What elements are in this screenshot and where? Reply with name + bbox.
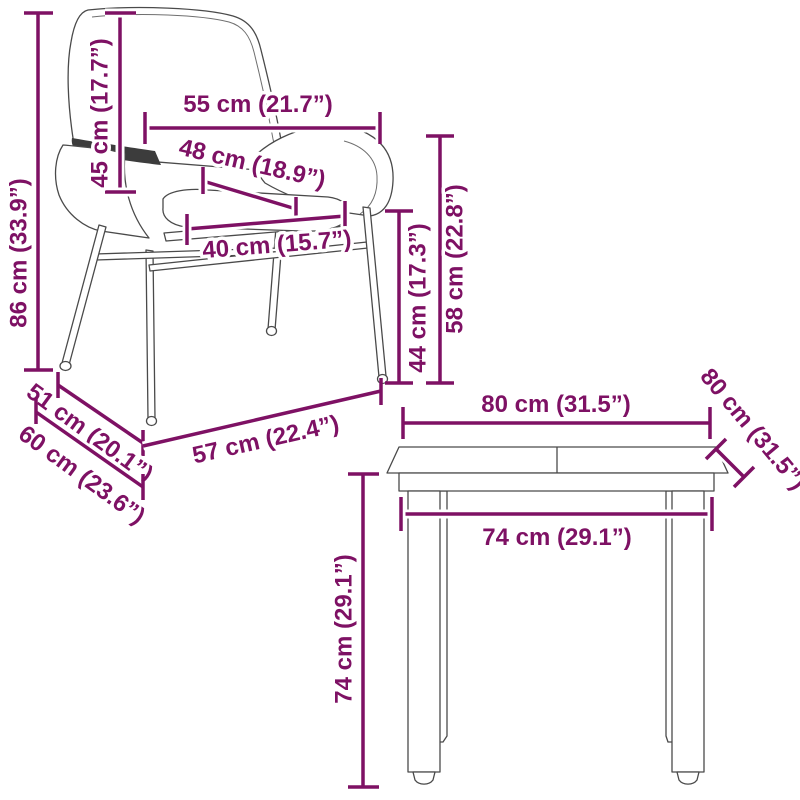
chair-top-width-label: 55 cm (21.7”) xyxy=(183,91,332,118)
chair-seat-height-label: 44 cm (17.3”) xyxy=(404,223,431,372)
table-top-width-label: 80 cm (31.5”) xyxy=(481,391,630,418)
chair-backrest-height-label: 45 cm (17.7”) xyxy=(86,38,113,187)
chair-leg-front-left xyxy=(62,225,106,365)
chair-total-height-dimension: 86 cm (33.9”) xyxy=(5,13,53,370)
chair-foot xyxy=(267,327,277,336)
table-dimensions: 80 cm (31.5”) 80 cm (31.5”) 74 cm (29.1”… xyxy=(330,363,800,787)
table-height-label: 74 cm (29.1”) xyxy=(330,554,357,703)
chair-armrest-height-label: 58 cm (22.8”) xyxy=(441,184,468,333)
chair-seat-height-dimension: 44 cm (17.3”) xyxy=(385,211,431,383)
chair-base-width-dimension: 57 cm (22.4”) xyxy=(143,378,381,469)
dimension-diagram: 86 cm (33.9”) 45 cm (17.7”) 55 cm (21.7”… xyxy=(0,0,800,800)
table-foot-right xyxy=(677,772,699,784)
chair-leg-front-right xyxy=(363,207,386,377)
table-top-width-dimension: 80 cm (31.5”) xyxy=(403,391,710,439)
chair-total-height-label: 86 cm (33.9”) xyxy=(5,178,32,327)
diagram-svg: 86 cm (33.9”) 45 cm (17.7”) 55 cm (21.7”… xyxy=(0,0,800,800)
table-leg-span-label: 74 cm (29.1”) xyxy=(482,524,631,551)
table-foot-left xyxy=(413,772,435,784)
table-apron xyxy=(399,473,714,491)
chair-foot xyxy=(60,362,71,371)
table-illustration xyxy=(387,447,728,784)
chair-foot xyxy=(147,417,157,426)
chair-armrest-height-dimension: 58 cm (22.8”) xyxy=(426,136,468,383)
table-leg-front-left xyxy=(408,491,440,772)
table-leg-front-right xyxy=(672,491,704,772)
table-height-dimension: 74 cm (29.1”) xyxy=(330,474,379,787)
chair-leg-back-left xyxy=(146,250,155,419)
